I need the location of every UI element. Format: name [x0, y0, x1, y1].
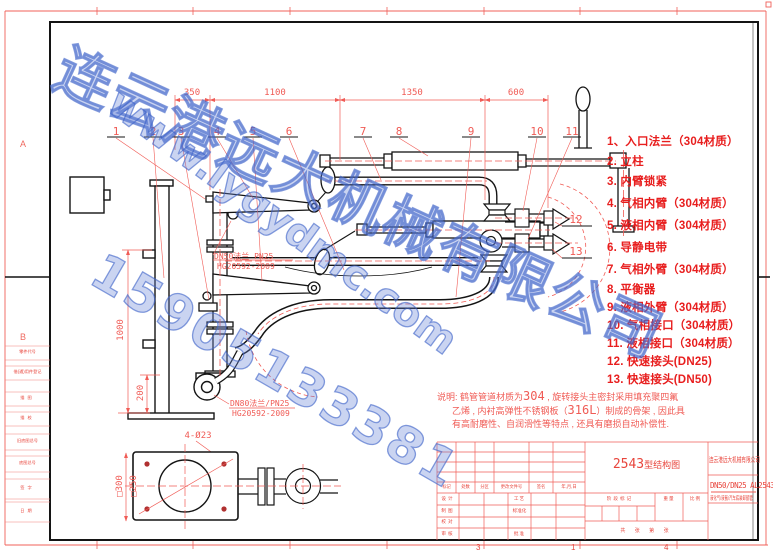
callout-12: 12	[564, 213, 588, 226]
gas-inner-arm	[213, 192, 320, 213]
callout-5: 5	[244, 125, 262, 138]
note-line-1: 说明: 鹤管管道材质为304 , 旋转接头主密封采用填充聚四氟	[437, 389, 678, 403]
callout-9: 9	[462, 125, 480, 138]
sheet-count-label: 共 张 第 张	[585, 527, 708, 534]
annotation-dn80-flange: DN80法兰/PN25	[230, 398, 289, 409]
note-text: ）制成的骨架 , 因此具	[596, 406, 685, 416]
note-text: 乙烯 , 内衬高弹性不锈钢板（	[452, 406, 568, 416]
note-line-3: 有高耐磨性、自润滑性等特点 , 还具有磨损自动补偿性.	[452, 417, 669, 430]
callout-6: 6	[280, 125, 298, 138]
rev-header-date: 年,月,日	[553, 484, 585, 490]
annotation-dn80-standard: HG20592-2009	[232, 409, 290, 418]
weight-label: 重量	[655, 496, 683, 502]
callout-1: 1	[107, 125, 125, 138]
note-text: , 旋转接头主密封采用填充聚四氟	[545, 392, 679, 402]
callout-7: 7	[354, 125, 372, 138]
dim-350: 350	[180, 88, 204, 98]
note-material-316l: 316L	[568, 403, 597, 417]
parts-list-item: 3. 内臂锁紧	[607, 173, 767, 193]
rev-header-signature: 签名	[529, 484, 553, 490]
note-line-2: 乙烯 , 内衬高弹性不锈钢板（316L）制成的骨架 , 因此具	[452, 403, 685, 417]
parts-list-item: 11. 液相接口（304材质）	[607, 335, 767, 355]
parts-list-item: 10. 气相接口（304材质）	[607, 317, 767, 337]
drawing-title-suffix: 型结构图	[644, 460, 680, 470]
dim-1000: 1000	[116, 315, 126, 345]
swivel-joint-lower	[481, 255, 507, 272]
dim-square-300: □300	[115, 469, 125, 503]
margin-label-base-no: 底图总号	[5, 460, 50, 466]
callout-2: 2	[144, 125, 162, 138]
margin-label-trace: 描图	[5, 395, 50, 401]
dim-4-holes: 4-Ø23	[176, 431, 220, 441]
company-name: 连云港远大机械有限公司	[709, 455, 758, 465]
margin-label-date: 日期	[5, 508, 50, 514]
fold-number: 1	[571, 543, 575, 551]
role-review: 审核	[437, 531, 459, 537]
drawing-title-number: 2543	[613, 457, 644, 472]
margin-label-trace-check: 描校	[5, 415, 50, 421]
swivel-joint-upper	[484, 204, 510, 221]
callout-10: 10	[528, 125, 546, 138]
annotation-dn50-standard: HG20592-2009	[217, 262, 275, 271]
zone-letter-b: B	[20, 332, 26, 342]
stage-mark-label: 阶段标记	[585, 496, 655, 502]
parts-list-item: 2. 立柱	[607, 153, 767, 173]
role-check: 校对	[437, 519, 459, 525]
drawing-number: DN50/DN25 AL2543	[710, 481, 758, 490]
parts-list-item: 1、入口法兰（304材质）	[607, 133, 767, 153]
margin-label-signature: 签字	[5, 485, 50, 491]
callout-8: 8	[390, 125, 408, 138]
role-standardization: 标准化	[508, 508, 531, 514]
dim-600: 600	[504, 88, 528, 98]
callout-3: 3	[172, 125, 190, 138]
parts-list-item: 6. 导静电带	[607, 239, 767, 259]
callout-11: 11	[563, 125, 581, 138]
parts-list-item: 7. 气相外臂（304材质）	[607, 261, 767, 281]
rev-header-change-file: 更改文件号	[494, 484, 529, 490]
parts-list-item: 5. 液相内臂（304材质）	[607, 217, 767, 237]
parts-list-item: 13. 快速接头(DN50)	[607, 371, 767, 391]
note-material-304: 304	[523, 389, 545, 403]
parts-list-item: 8. 平衡器	[607, 281, 767, 301]
note-text: 说明: 鹤管管道材质为	[437, 392, 523, 402]
role-process: 工艺	[508, 496, 531, 502]
callout-4: 4	[208, 125, 226, 138]
annotation-dn50-flange: DN50法兰 PN25	[214, 251, 273, 262]
dim-1350: 1350	[398, 88, 426, 98]
static-grounding-wire	[285, 267, 432, 276]
dim-200: 200	[136, 379, 146, 407]
margin-label-old-base-no: 旧底图总号	[5, 438, 50, 444]
dim-square-250: □250	[129, 469, 139, 503]
drawing-title: 2543型结构图	[585, 455, 708, 473]
parts-list-item: 9. 液相外臂（304材质）	[607, 299, 767, 319]
role-approve: 批准	[508, 531, 531, 537]
fold-number: 3	[476, 543, 480, 551]
margin-label-part-code: 零件代号	[5, 349, 50, 355]
liquid-inner-arm	[213, 274, 320, 295]
scale-label: 比例	[683, 496, 708, 502]
rev-header-zone: 分区	[475, 484, 494, 490]
centerlines	[220, 150, 624, 397]
drawing-subtitle: 液化气/液氨/汽车底装卸鹤管	[710, 494, 758, 502]
parts-list-item: 12. 快速接头(DN25)	[607, 353, 767, 373]
role-draft: 制图	[437, 508, 459, 514]
role-design: 设计	[437, 496, 459, 502]
drawing-sheet: A B 3 1 4 零件代号 借(通)用件登记 描图 描校 旧底图总号 底图总号…	[0, 0, 773, 551]
margin-label-borrowed: 借(通)用件登记	[5, 369, 50, 375]
callout-13: 13	[564, 245, 588, 258]
fold-number: 4	[664, 543, 668, 551]
rev-header-mark: 标记	[437, 484, 456, 490]
zone-letter-a: A	[20, 139, 26, 149]
ball-swivel	[480, 230, 502, 252]
parts-list-item: 4. 气相内臂（304材质）	[607, 195, 767, 215]
dim-1100: 1100	[261, 88, 289, 98]
rev-header-count: 处数	[456, 484, 475, 490]
